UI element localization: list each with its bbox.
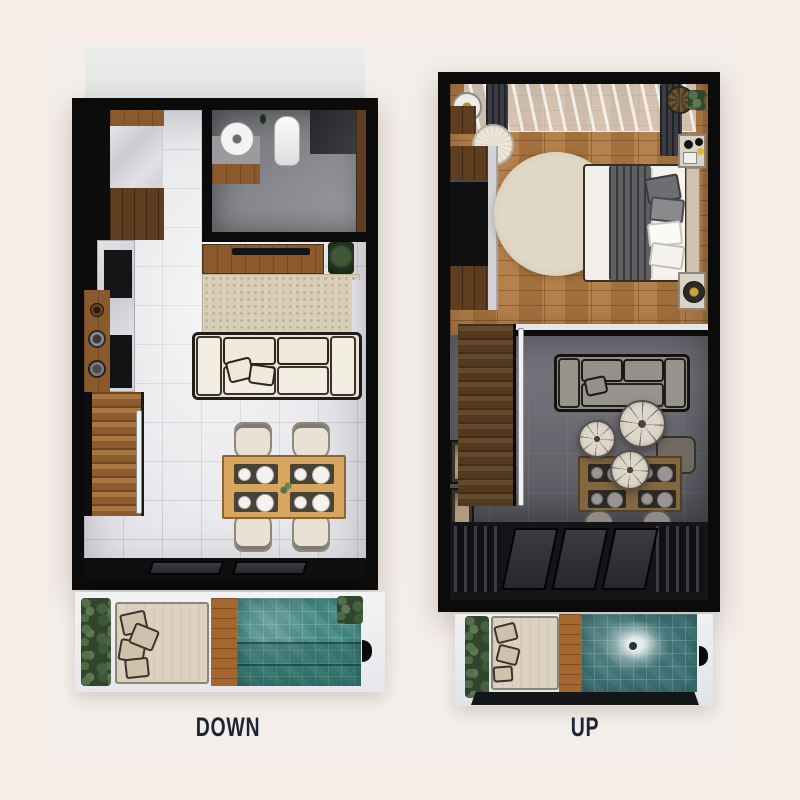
glass-pane (232, 561, 309, 575)
daybed-pillow-up (492, 665, 513, 682)
plate-below (641, 493, 653, 505)
table-lamp (683, 281, 705, 303)
placemat (290, 464, 334, 484)
planter-left (81, 598, 111, 686)
kitchen-wall-shadow (84, 240, 97, 296)
planter-corner (337, 596, 363, 624)
plate (294, 468, 307, 481)
plate (294, 496, 307, 509)
bathroom-sink (220, 122, 254, 156)
toilet (274, 116, 300, 166)
pool-step (237, 664, 361, 686)
sofa (192, 332, 362, 400)
plate-below (657, 466, 673, 482)
bathroom-plant-icon (260, 114, 266, 124)
bathroom-wood-wall (356, 110, 366, 232)
daybed (115, 602, 209, 684)
wardrobe-lower (450, 266, 488, 310)
pendant-light-small (610, 450, 650, 490)
living-rug (202, 274, 360, 336)
sofa-back-cushion (277, 337, 329, 365)
plate (312, 466, 330, 484)
sofa-below-cushion (623, 359, 664, 382)
staircase-down (84, 392, 144, 516)
pendant-light-medium (578, 420, 616, 458)
bedroom-plant (688, 90, 706, 110)
headboard (686, 168, 700, 278)
bathroom-vanity (212, 164, 260, 184)
placemat-below (588, 490, 626, 508)
sofa-seat-cushion (277, 366, 329, 395)
placemat (290, 492, 334, 512)
placemat (234, 492, 278, 512)
plate (238, 496, 251, 509)
up-plan-walls (438, 72, 720, 612)
pot-large (88, 360, 106, 378)
down-outdoor-area (75, 592, 385, 692)
sofa-below-armrest (664, 358, 686, 408)
bed-pillow-gray (649, 196, 685, 223)
entry-closet (110, 126, 162, 188)
daybed-pillow-up (495, 644, 521, 667)
decor-book (683, 152, 697, 164)
wall-light-up (699, 646, 708, 666)
sofa-armrest-right (330, 336, 356, 396)
nightstand-top (678, 134, 706, 168)
terrace-edge (471, 692, 699, 705)
roof-glass-pane (551, 528, 608, 590)
pool-deck-up (559, 614, 581, 692)
pool-step (237, 642, 361, 664)
up-label: UP (477, 712, 693, 743)
dining-table (222, 455, 346, 519)
sofa-below (554, 354, 690, 412)
plunge-pool-up (581, 614, 697, 692)
table-centerpiece (279, 481, 293, 495)
plate (256, 466, 274, 484)
corner-table (450, 106, 476, 134)
down-plan-walls (72, 98, 378, 590)
pot-small (90, 303, 104, 317)
sofa-armrest-left (196, 336, 222, 396)
bedroom-floor (450, 84, 708, 336)
staircase-up (458, 324, 516, 506)
plate (312, 494, 330, 512)
wardrobe (450, 180, 488, 266)
plate-below (591, 493, 603, 505)
louver-right (656, 526, 704, 592)
roof-glass-pane (501, 528, 558, 590)
plate-below (657, 492, 673, 508)
bed-pillow-white (648, 242, 685, 270)
plate (256, 494, 274, 512)
wardrobe-top (450, 146, 490, 180)
louver-left (454, 526, 502, 592)
planter-left-up (465, 616, 489, 698)
nightstand-bottom (678, 272, 706, 310)
shower (310, 110, 356, 154)
plate-below (607, 492, 623, 508)
plate-below (591, 467, 603, 479)
daybed-up (491, 616, 559, 690)
down-plan-floor (84, 110, 366, 578)
bathroom (202, 110, 366, 242)
down-label: DOWN (120, 712, 336, 743)
plate (238, 468, 251, 481)
pot-medium (88, 330, 106, 348)
void-glass-roof (450, 522, 708, 600)
entry-walkway (85, 45, 365, 99)
up-outdoor-area (455, 614, 713, 706)
entry-shadow-wall (84, 110, 110, 242)
stair-side-wall (84, 392, 92, 516)
daybed-pillow-up (493, 622, 519, 645)
placemat-below (638, 490, 676, 508)
swimmer (629, 642, 637, 650)
tv (232, 248, 310, 255)
roof-glass-pane (601, 528, 658, 590)
sofa-pillow (248, 363, 277, 386)
plant (328, 242, 354, 274)
entry-cabinet-lower (110, 188, 164, 240)
glass-pane (148, 561, 225, 575)
placemat (234, 464, 278, 484)
glass-sliding-wall (84, 558, 366, 578)
decor-bottle (695, 138, 703, 146)
decor-candle (697, 148, 704, 155)
stair-railing (136, 410, 142, 514)
wall-light (362, 640, 372, 662)
decor-bottle (684, 140, 693, 149)
pendant-light-large (618, 400, 666, 448)
entry-cabinet (110, 110, 164, 126)
staircase-up-railing (518, 328, 524, 506)
pool-deck (211, 598, 237, 686)
floor-plan-poster: DOWN (0, 0, 800, 800)
daybed-pillow (124, 657, 150, 679)
sofa-below-armrest (558, 358, 580, 408)
